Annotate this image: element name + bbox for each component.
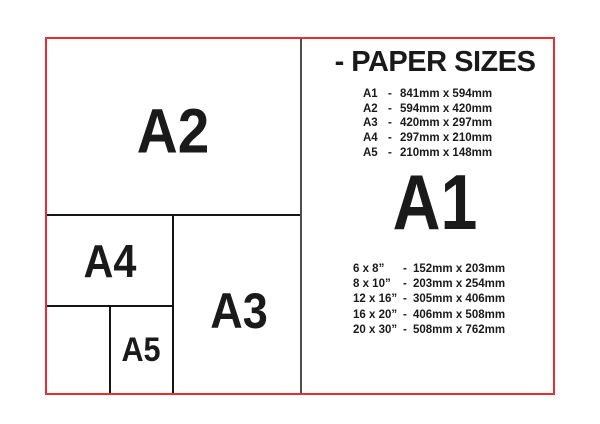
size-name: A3 <box>363 116 388 131</box>
a5-left-line <box>109 306 111 393</box>
size-row: 20 x 30” - 508mm x 762mm <box>353 323 505 338</box>
size-name: 16 x 20” <box>353 308 403 323</box>
size-name: A1 <box>363 87 388 102</box>
size-row: A4 - 297mm x 210mm <box>363 131 492 146</box>
size-dash: - <box>388 116 400 131</box>
size-dash: - <box>403 308 413 323</box>
featured-size-label: A1 <box>327 163 543 241</box>
a2-box-label: A2 <box>137 101 209 164</box>
a3-box-label: A3 <box>210 286 268 336</box>
size-row: 8 x 10” - 203mm x 254mm <box>353 277 505 292</box>
panel-divider-line <box>300 39 302 393</box>
size-dash: - <box>403 323 413 338</box>
size-name: A4 <box>363 131 388 146</box>
size-dims: 203mm x 254mm <box>413 277 505 292</box>
inch-size-list: 6 x 8” - 152mm x 203mm 8 x 10” - 203mm x… <box>353 262 505 338</box>
size-dash: - <box>403 292 413 307</box>
size-dims: 305mm x 406mm <box>413 292 505 307</box>
size-name: 8 x 10” <box>353 277 403 292</box>
size-name: A2 <box>363 102 388 117</box>
size-dims: 841mm x 594mm <box>400 87 492 102</box>
size-dash: - <box>388 131 400 146</box>
size-row: 16 x 20” - 406mm x 508mm <box>353 308 505 323</box>
size-name: 20 x 30” <box>353 323 403 338</box>
size-dims: 406mm x 508mm <box>413 308 505 323</box>
size-dash: - <box>403 277 413 292</box>
size-row: 12 x 16” - 305mm x 406mm <box>353 292 505 307</box>
size-row: A3 - 420mm x 297mm <box>363 116 492 131</box>
a-size-list: A1 - 841mm x 594mm A2 - 594mm x 420mm A3… <box>363 87 492 161</box>
a4-a3-divider-line <box>172 214 174 393</box>
size-dims: 594mm x 420mm <box>400 102 492 117</box>
size-dims: 508mm x 762mm <box>413 323 505 338</box>
size-row: A2 - 594mm x 420mm <box>363 102 492 117</box>
a4-box-label: A4 <box>84 238 137 284</box>
size-dims: 420mm x 297mm <box>400 116 492 131</box>
size-row: 6 x 8” - 152mm x 203mm <box>353 262 505 277</box>
page-title: - PAPER SIZES <box>308 46 562 79</box>
size-row: A1 - 841mm x 594mm <box>363 87 492 102</box>
size-dims: 152mm x 203mm <box>413 262 505 277</box>
size-dash: - <box>403 262 413 277</box>
size-name: A5 <box>363 146 388 161</box>
size-name: 12 x 16” <box>353 292 403 307</box>
size-dash: - <box>388 102 400 117</box>
paper-sizes-infographic: A2 A4 A3 A5 - PAPER SIZES A1 - 841mm x 5… <box>0 0 600 424</box>
size-name: 6 x 8” <box>353 262 403 277</box>
size-dash: - <box>388 87 400 102</box>
a5-box-label: A5 <box>121 333 160 367</box>
size-dims: 297mm x 210mm <box>400 131 492 146</box>
